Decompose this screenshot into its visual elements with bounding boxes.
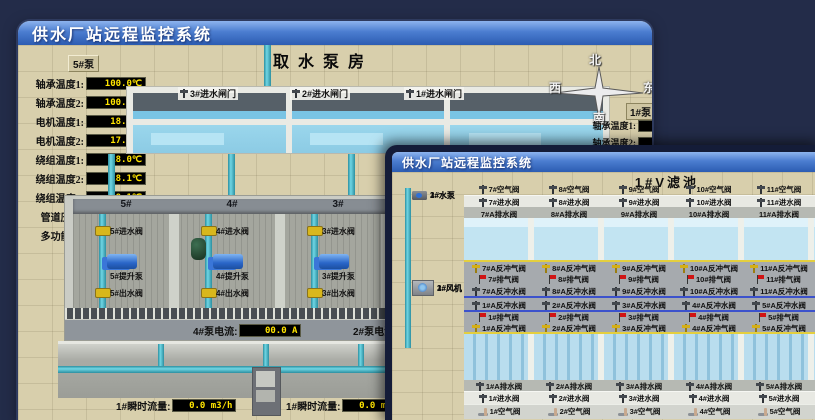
valve-label: 5#进水阀 [769,393,800,404]
inlet-valve: 3#进水阀 [604,393,674,404]
valve-icon[interactable] [619,394,627,403]
valve-icon[interactable] [542,287,550,296]
intake-gate-1: 1#进水闸门 [404,87,464,100]
pump-icon[interactable] [412,191,427,200]
elbow-pipe-icon[interactable] [548,408,558,416]
bay-header: 4# [179,199,285,214]
exhaust-flag-icon[interactable] [549,313,556,322]
backwash-air-valve: 11#A反冲气阀 [744,263,814,274]
valve-icon[interactable] [689,394,697,403]
exhaust-flag-icon[interactable] [757,275,764,284]
filter-cell [604,218,668,260]
valve-label: 9#排气阀 [628,274,659,285]
inlet-pipe [264,45,271,90]
pipe-gallery: 7#A反冲气阀 8#A反冲气阀 9#A反冲气阀 10#A反冲气阀 [464,260,815,334]
exhaust-flag-icon[interactable] [619,275,626,284]
exhaust-valve: 11#排气阀 [744,274,814,285]
air-valve: 10#空气阀 [674,184,744,195]
equipment-pipe [405,188,411,348]
valve-label: 10#A反冲气阀 [690,263,738,274]
flow-value: 0.0 m3/h [172,399,236,412]
front-window-titlebar[interactable]: 供水厂站远程监控系统 [392,152,815,172]
temperature-value [638,120,652,132]
valve-label: 3#进水阀 [629,393,660,404]
valve-icon[interactable] [680,287,688,296]
filter-cell [604,334,668,380]
flow-label: 1#瞬时流量: [116,398,170,413]
exhaust-valve: 9#排气阀 [604,274,674,285]
filter-pool-scene: 1#V滤池 1#水泵 2#水泵 3#水泵 [392,172,815,420]
valve-icon[interactable] [479,394,487,403]
valve-label: 1#空气阀 [490,406,521,417]
backwash-water-valve: 8#A反冲水阀 [534,286,604,297]
front-window-title: 供水厂站远程监控系统 [402,154,532,171]
inlet-valve: 1#进水阀 [464,393,534,404]
exhaust-flag-icon[interactable] [479,275,486,284]
temperature-label: 轴承温度1: [24,76,84,91]
valve-icon[interactable] [680,264,688,273]
valve-label: 7#A反冲水阀 [482,286,526,297]
filter-cell [464,218,528,260]
intake-gate-3: 3#进水闸门 [178,87,238,100]
inlet-valve-icon[interactable] [201,226,217,236]
filter-cells-top [464,218,815,260]
temperature-row: 绕组温度2: 18.1℃ [24,171,154,186]
gate-label: 1#进水闸门 [416,87,462,100]
air-manifold-line [464,260,815,262]
exhaust-row-bottom: 1#排气阀 2#排气阀 3#排气阀 4#排气阀 [464,312,815,323]
valve-icon[interactable] [542,264,550,273]
gate-label: 3#进水闸门 [190,87,236,100]
valve-icon[interactable] [686,382,694,391]
air-valve: 2#空气阀 [534,406,604,417]
air-valve: 11#空气阀 [744,184,814,195]
gate-valve-icon[interactable] [292,89,300,98]
scene-title: 取水泵房 [228,48,418,72]
air-valve-row-bottom: 1#空气阀 2#空气阀 3#空气阀 4#空气阀 5#空气阀 [464,406,815,417]
riser-pipe [108,154,115,198]
blower: 3#风机 [412,280,462,296]
backwash-water-row-bottom: 1#A反冲水阀 2#A反冲水阀 3#A反冲水阀 4#A反冲水阀 [464,300,815,311]
backwash-water-row-top: 7#A反冲水阀 8#A反冲水阀 9#A反冲水阀 10#A反冲水阀 [464,286,815,297]
back-window-titlebar[interactable]: 供水厂站远程监控系统 [18,21,652,45]
valve-icon[interactable] [619,185,627,194]
temperature-label: 轴承温度2: [24,95,84,110]
air-valve-row-top: 7#空气阀 8#空气阀 9#空气阀 10#空气阀 11#空气阀 [464,184,815,195]
valve-label: 3#排气阀 [628,312,659,323]
temperature-label: 轴承温度1: [574,119,636,132]
valve-icon[interactable] [472,264,480,273]
valve-label: 2#A反冲水阀 [552,300,596,311]
air-valve: 1#空气阀 [464,406,534,417]
pump-icon[interactable] [107,254,137,269]
gate-valve-icon[interactable] [406,89,414,98]
outlet-valve-label: 5#出水阀 [110,288,143,299]
exhaust-row-top: 7#排气阀 8#排气阀 9#排气阀 10#排气阀 [464,274,815,285]
pump-label: 3#水泵 [430,190,455,201]
elbow-pipe-icon[interactable] [478,408,488,416]
blower-label: 3#风机 [437,283,462,294]
air-valve: 9#空气阀 [604,184,674,195]
flow-label: 1#瞬时流量: [286,398,340,413]
backwash-air-row-top: 7#A反冲气阀 8#A反冲气阀 9#A反冲气阀 10#A反冲气阀 [464,263,815,274]
temperature-label: 绕组温度2: [24,171,84,186]
riser-pipe [228,154,235,198]
valve-label: 4#进水阀 [699,393,730,404]
inlet-valve-row-bottom: 1#进水阀 2#进水阀 3#进水阀 4#进水阀 5#进水阀 [464,393,815,404]
valve-label: 10#空气阀 [696,184,731,195]
backwash-air-valve: 8#A反冲气阀 [534,263,604,274]
backwash-water-valve: 2#A反冲水阀 [534,300,604,311]
valve-label: 3#A反冲水阀 [622,300,666,311]
exhaust-flag-icon[interactable] [689,313,696,322]
inlet-valve-label: 3#进水阀 [322,226,355,237]
valve-icon[interactable] [616,382,624,391]
exhaust-valve: 4#排气阀 [674,312,744,323]
valve-label: 11#A反冲水阀 [760,286,808,297]
backwash-water-valve: 4#A反冲水阀 [674,300,744,311]
backwash-water-valve: 7#A反冲水阀 [464,286,534,297]
wall-pipe-stub [263,344,269,368]
gate-label: 2#进水闸门 [302,87,348,100]
valve-icon[interactable] [549,198,557,207]
temperature-label: 电机温度2: [24,133,84,148]
valve-label: 4#A反冲水阀 [692,300,736,311]
exhaust-flag-icon[interactable] [549,275,556,284]
valve-label: 9#A反冲水阀 [622,286,666,297]
valve-icon[interactable] [546,382,554,391]
page-background: 供水厂站远程监控系统 取水泵房 5#泵 轴承温度1: 100.0℃ 轴承温度2:… [0,0,815,420]
valve-icon[interactable] [479,198,487,207]
valve-label: 7#A反冲气阀 [482,263,526,274]
bay-header: 3# [285,199,391,214]
valve-label: 8#空气阀 [559,184,590,195]
filter-cell [534,218,598,260]
filter-cell [744,334,808,380]
temperature-row: 轴承温度1: [574,119,652,132]
backwash-water-valve: 11#A反冲水阀 [744,286,814,297]
valve-icon[interactable] [612,264,620,273]
backwash-water-valve: 9#A反冲水阀 [604,286,674,297]
valve-label: 2#排气阀 [558,312,589,323]
pump-icon[interactable] [319,254,349,269]
inlet-valve: 5#进水阀 [744,393,814,404]
valve-label: 4#空气阀 [700,406,731,417]
exhaust-flag-icon[interactable] [479,313,486,322]
valve-icon[interactable] [752,301,760,310]
valve-label: 1#排气阀 [488,312,519,323]
valve-label: 11#A反冲气阀 [760,263,808,274]
back-window-title: 供水厂站远程监控系统 [32,21,212,45]
valve-label: 1#A反冲水阀 [482,300,526,311]
exhaust-valve: 8#排气阀 [534,274,604,285]
valve-icon[interactable] [750,287,758,296]
elbow-pipe-icon[interactable] [758,408,768,416]
filter-pool: 7#空气阀 8#空气阀 9#空气阀 10#空气阀 11#空气阀 [464,184,815,416]
tank-grid [133,93,603,147]
filter-cell [744,218,808,260]
inlet-valve: 4#进水阀 [674,393,744,404]
valve-label: 2#进水阀 [559,393,590,404]
air-valve: 4#空气阀 [674,406,744,417]
pump5-panel-header: 5#泵 [68,55,99,72]
tank-cell [133,125,286,153]
blower-icon[interactable] [412,280,434,296]
temperature-row: 绕组温度1: 18.0℃ [24,152,154,167]
exhaust-flag-icon[interactable] [759,313,766,322]
inlet-valve-icon[interactable] [307,226,323,236]
valve-icon[interactable] [757,198,765,207]
valve-icon[interactable] [686,185,694,194]
inlet-valve-icon[interactable] [95,226,111,236]
valve-label: 7#空气阀 [489,184,520,195]
outlet-valve-label: 4#出水阀 [216,288,249,299]
riser-pipe [348,154,355,198]
backwash-pump: 3#水泵 [412,190,455,201]
backwash-water-valve: 5#A反冲水阀 [744,300,814,311]
valve-label: 8#A反冲水阀 [552,286,596,297]
outlet-valve-icon[interactable] [95,288,111,298]
valve-label: 9#空气阀 [629,184,660,195]
filter-cell [534,334,598,380]
compass-east: 东 [643,79,652,96]
exhaust-valve: 3#排气阀 [604,312,674,323]
pump-bay: 5#进水阀 5#提升泵 5#出水阀 [73,214,179,308]
intake-gate-2: 2#进水闸门 [290,87,350,100]
valve-icon[interactable] [549,394,557,403]
valve-icon[interactable] [757,185,765,194]
tank-object [191,238,206,260]
valve-label: 1#进水阀 [489,393,520,404]
valve-icon[interactable] [682,301,690,310]
pump-label: 5#提升泵 [110,271,143,282]
valve-icon[interactable] [750,264,758,273]
inlet-valve-label: 5#进水阀 [110,226,143,237]
valve-label: 5#空气阀 [770,406,801,417]
pump-label: 3#提升泵 [322,271,355,282]
front-window-body: 供水厂站远程监控系统 1#V滤池 1#水泵 2#水泵 3#水泵 [392,152,815,420]
front-window: 供水厂站远程监控系统 1#V滤池 1#水泵 2#水泵 3#水泵 [385,145,815,420]
valve-icon[interactable] [479,185,487,194]
valve-label: 11#空气阀 [767,184,802,195]
temperature-value: 18.1℃ [86,172,146,185]
valve-icon[interactable] [619,198,627,207]
pump-bay: 3#进水阀 3#提升泵 3#出水阀 [285,214,391,308]
outlet-valve-label: 3#出水阀 [322,288,355,299]
elbow-pipe-icon[interactable] [688,408,698,416]
control-cabinet[interactable] [252,367,281,416]
valve-label: 4#排气阀 [698,312,729,323]
air-valve: 3#空气阀 [604,406,674,417]
exhaust-flag-icon[interactable] [687,275,694,284]
air-valve: 8#空气阀 [534,184,604,195]
valve-icon[interactable] [542,301,550,310]
compass-north: 北 [589,51,601,68]
exhaust-valve: 2#排气阀 [534,312,604,323]
valve-icon[interactable] [549,185,557,194]
outlet-valve-icon[interactable] [201,288,217,298]
valve-icon[interactable] [476,382,484,391]
pump-label: 4#提升泵 [216,271,249,282]
wall-pipe-stub [358,344,364,368]
valve-label: 5#A反冲水阀 [762,300,806,311]
exhaust-valve: 1#排气阀 [464,312,534,323]
valve-icon[interactable] [612,287,620,296]
exhaust-flag-icon[interactable] [619,313,626,322]
valve-label: 7#排气阀 [488,274,519,285]
equipment-column: 1#水泵 2#水泵 3#水泵 1#风机 [392,184,464,414]
backwash-air-valve: 10#A反冲气阀 [674,263,744,274]
air-valve: 7#空气阀 [464,184,534,195]
valve-label: 9#A反冲气阀 [622,263,666,274]
valve-icon[interactable] [686,198,694,207]
pump-icon[interactable] [213,254,243,269]
backwash-water-valve: 1#A反冲水阀 [464,300,534,311]
current-label: 4#泵电流: [193,323,237,338]
temperature-label: 绕组温度1: [24,152,84,167]
filter-cell [464,334,528,380]
flow-display: 1#瞬时流量: 0.0 m3/h [116,398,236,413]
backwash-water-valve: 10#A反冲水阀 [674,286,744,297]
exhaust-valve: 5#排气阀 [744,312,814,323]
current-value: 00.0 A [239,324,301,337]
valve-label: 3#空气阀 [630,406,661,417]
exhaust-valve: 7#排气阀 [464,274,534,285]
pump-bay: 4#进水阀 4#提升泵 4#出水阀 [179,214,285,308]
valve-icon[interactable] [472,301,480,310]
wall-pipe-stub [158,344,164,368]
bay-header: 5# [73,199,179,214]
compass-west: 西 [549,79,561,96]
valve-label: 2#空气阀 [560,406,591,417]
valve-label: 10#排气阀 [696,274,731,285]
elbow-pipe-icon[interactable] [618,408,628,416]
valve-label: 10#A反冲水阀 [690,286,738,297]
filter-cells-bottom [464,334,815,380]
air-valve: 5#空气阀 [744,406,814,417]
pump-current-display: 4#泵电流: 00.0 A [193,323,301,338]
valve-label: 8#A反冲气阀 [552,263,596,274]
valve-label: 8#排气阀 [558,274,589,285]
backwash-water-valve: 3#A反冲水阀 [604,300,674,311]
backwash-air-valve: 9#A反冲气阀 [604,263,674,274]
exhaust-valve: 10#排气阀 [674,274,744,285]
valve-icon[interactable] [472,287,480,296]
gate-valve-icon[interactable] [180,89,188,98]
valve-label: 5#排气阀 [768,312,799,323]
outlet-valve-icon[interactable] [307,288,323,298]
valve-icon[interactable] [756,382,764,391]
filter-cell [674,218,738,260]
valve-label: 11#排气阀 [766,274,801,285]
pump1-panel-header: 1#泵 [626,103,652,120]
filter-cell [674,334,738,380]
backwash-air-valve: 7#A反冲气阀 [464,263,534,274]
inlet-valve: 2#进水阀 [534,393,604,404]
temperature-label: 电机温度1: [24,114,84,129]
temperature-value: 18.0℃ [86,153,146,166]
valve-icon[interactable] [759,394,767,403]
inlet-valve-label: 4#进水阀 [216,226,249,237]
valve-icon[interactable] [612,301,620,310]
